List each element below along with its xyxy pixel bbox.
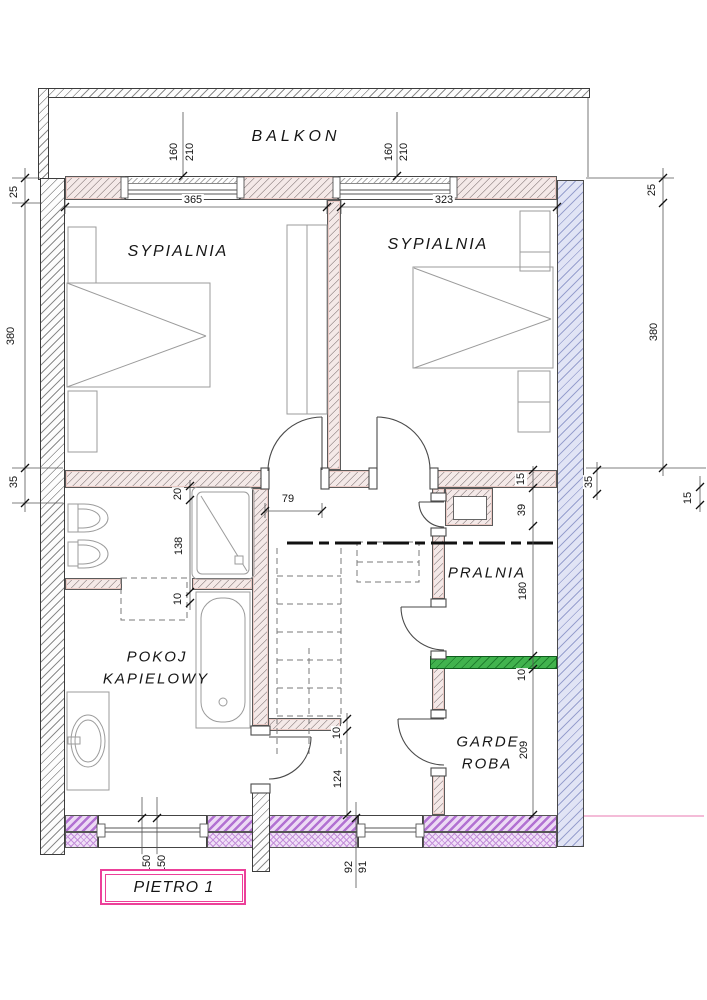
green-divider-wall — [430, 656, 557, 669]
bottom-insulation-3 — [423, 832, 557, 848]
right-exterior-wall — [557, 180, 584, 847]
dim-window-right-width: 160 — [383, 142, 395, 162]
room-label-bedroom-left: SYPIALNIA — [128, 243, 229, 261]
balcony-parapet-wall — [38, 88, 590, 98]
dim-bath-138: 138 — [173, 536, 185, 556]
dim-stairs-124: 124 — [332, 769, 344, 789]
mid-wall-segment-1 — [65, 470, 268, 488]
dim-corridor-79: 79 — [280, 493, 296, 505]
laundry-duct-opening — [453, 496, 487, 520]
dim-laundry-39: 39 — [516, 503, 528, 517]
dim-window-left-height: 210 — [184, 142, 196, 162]
dim-left-35: 35 — [8, 475, 20, 489]
nightstand — [68, 227, 96, 283]
top-wall-segment-2 — [240, 176, 338, 200]
dim-bedroom-right-width: 323 — [433, 194, 455, 206]
bottom-wall-segment-1 — [65, 815, 98, 832]
dim-wardrobe-209: 209 — [518, 740, 530, 760]
door-bedroom-right — [369, 417, 438, 489]
room-label-wardrobe-line2: ROBA — [462, 756, 513, 773]
dim-left-380: 380 — [5, 326, 17, 346]
top-wall-segment-1 — [65, 176, 125, 200]
dim-window-92: 92 — [343, 860, 355, 874]
bottom-window-middle — [358, 815, 423, 848]
bathroom-corridor-wall-upper — [252, 488, 269, 726]
nightstand — [518, 371, 550, 432]
room-label-bathroom-line1: POKOJ — [127, 649, 188, 666]
door-laundry — [401, 599, 446, 659]
bottom-insulation-2 — [207, 832, 358, 848]
room-label-balcony: BALKON — [252, 128, 341, 146]
dim-right-25: 25 — [646, 183, 658, 197]
dimension-ticks — [21, 172, 704, 822]
dim-bath-20: 20 — [172, 487, 184, 501]
sink — [67, 692, 109, 790]
dim-laundry-10: 10 — [516, 668, 528, 682]
floor-title: PIETRO 1 — [105, 874, 243, 902]
plan-drawing — [0, 0, 707, 1000]
dim-window-91: 91 — [357, 860, 369, 874]
wardrobe-left-bedroom — [287, 225, 327, 414]
shower-stub-wall — [192, 578, 253, 590]
laundry-wall-segment-4 — [432, 768, 445, 815]
mid-wall-segment-2 — [321, 470, 377, 488]
dim-bedroom-left-width: 365 — [182, 194, 204, 206]
bottom-wall-segment-2 — [207, 815, 358, 832]
nightstand — [520, 211, 550, 271]
left-exterior-wall — [40, 178, 65, 855]
bidet — [68, 540, 108, 568]
laundry-wall-segment-2 — [432, 528, 445, 599]
dim-right-15: 15 — [682, 491, 694, 505]
mid-wall-segment-3 — [430, 470, 557, 488]
dimension-lines — [12, 112, 706, 888]
bottom-window-left — [98, 815, 207, 848]
dim-bath-10: 10 — [172, 592, 184, 606]
door-bedroom-left — [261, 417, 329, 489]
bedroom-divider-wall — [327, 200, 341, 470]
dim-stairs-10: 10 — [331, 726, 343, 740]
bottom-insulation-1 — [65, 832, 98, 848]
room-label-bathroom-line2: KAPIELOWY — [103, 671, 209, 688]
door-bathroom — [251, 726, 311, 793]
bottom-wall-segment-3 — [423, 815, 557, 832]
dim-right-35: 35 — [583, 475, 595, 489]
room-label-laundry: PRALNIA — [448, 565, 526, 582]
floor-plan: BALKON SYPIALNIA SYPIALNIA POKOJ KAPIELO… — [0, 0, 707, 1000]
bathtub — [196, 592, 250, 728]
nightstand — [68, 391, 97, 452]
dim-laundry-15: 15 — [515, 472, 527, 486]
room-label-wardrobe-line1: GARDE — [456, 734, 519, 751]
door-wardrobe — [398, 710, 446, 776]
window-sill — [340, 178, 451, 184]
window-frames — [97, 177, 457, 837]
shower — [192, 487, 254, 579]
room-label-bedroom-right: SYPIALNIA — [388, 236, 489, 254]
dim-window-left-width: 160 — [168, 142, 180, 162]
window-sill — [127, 178, 238, 184]
dim-window-right-height: 210 — [398, 142, 410, 162]
bathroom-stub-wall — [65, 578, 122, 590]
floor-title-box: PIETRO 1 — [100, 869, 246, 905]
dim-laundry-180: 180 — [517, 581, 529, 601]
stairs-landing — [357, 542, 419, 582]
laundry-wall-segment-1 — [432, 488, 445, 500]
top-wall-segment-3 — [453, 176, 557, 200]
toilet — [68, 504, 108, 532]
dim-right-380: 380 — [648, 322, 660, 342]
chimney-column — [252, 790, 270, 872]
balcony-left-wall — [38, 88, 49, 180]
dim-left-25: 25 — [8, 185, 20, 199]
